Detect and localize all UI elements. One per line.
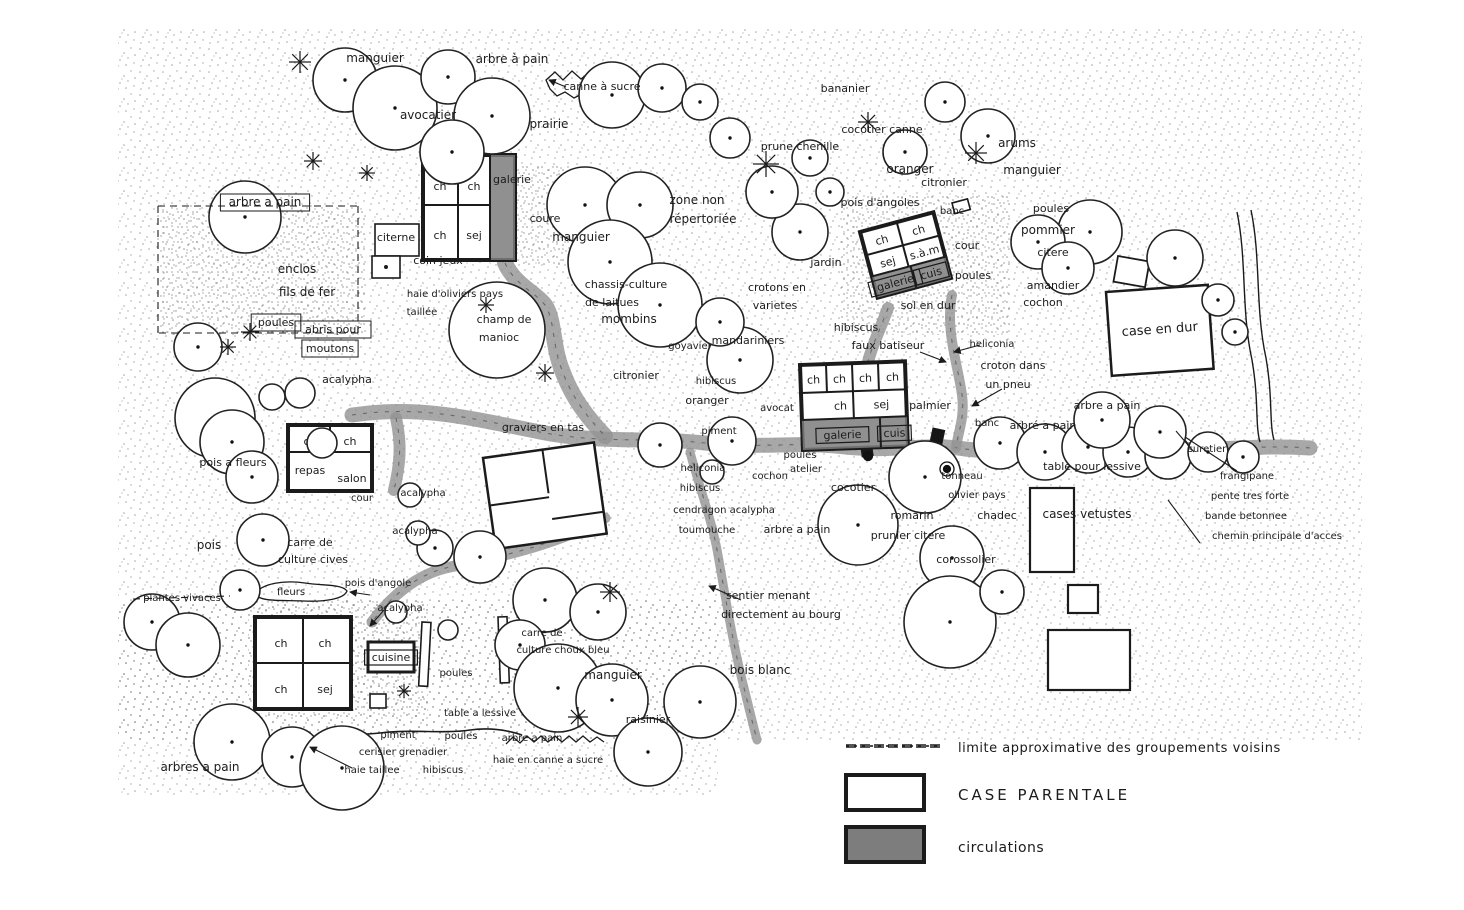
map-label: piment xyxy=(380,730,415,741)
tree-icon xyxy=(1147,230,1203,286)
tree-icon xyxy=(682,84,718,120)
map-label: haie en canne a sucre xyxy=(493,755,603,766)
map-label: fils de fer xyxy=(279,285,335,299)
map-label: pois a fleurs xyxy=(199,456,266,469)
room-label: cuisine xyxy=(372,651,411,664)
tree-icon xyxy=(285,378,315,408)
map-label: oranger xyxy=(685,394,729,407)
room-label: ch xyxy=(467,180,480,193)
map-label: abris pour xyxy=(305,323,361,336)
map-label: atelier xyxy=(790,464,823,475)
map-label: poules xyxy=(784,450,817,461)
legend-label: circulations xyxy=(958,840,1044,856)
room-label: ch xyxy=(343,435,356,448)
map-label: chadec xyxy=(977,509,1017,522)
small-structure xyxy=(370,694,386,708)
map-label: citronier xyxy=(921,176,967,189)
plant-star-icon xyxy=(536,364,554,382)
yard-object-icon xyxy=(864,452,873,461)
map-label: poules xyxy=(258,316,295,329)
small-structure xyxy=(372,256,400,278)
map-label: poules xyxy=(1033,202,1070,215)
room-label: sej xyxy=(317,683,333,696)
case-parentale-centre: chchchchchsejgaleriecuis xyxy=(800,361,912,450)
map-label: croton dans xyxy=(981,359,1046,372)
small-structure xyxy=(1113,256,1149,287)
cuisine-annexe: cuisine xyxy=(365,642,418,672)
map-label: galerie xyxy=(493,173,531,186)
map-label: citerne xyxy=(377,231,415,244)
tree-icon xyxy=(746,166,798,218)
tree-icon xyxy=(579,62,645,128)
tree-icon xyxy=(614,718,682,786)
case-parentale-sud: chchchsej xyxy=(255,617,351,709)
tree-icon xyxy=(1134,406,1186,458)
room-label: ch xyxy=(859,371,872,384)
map-label: hibiscus xyxy=(696,376,737,387)
map-label: manioc xyxy=(479,331,519,344)
map-label: table a lessive xyxy=(444,708,516,719)
map-label: oranger xyxy=(886,162,933,176)
plant-star-icon xyxy=(220,339,236,355)
map-label: toumouche xyxy=(679,525,736,536)
map-label: raisinier xyxy=(626,713,671,726)
map-label: prune chenille xyxy=(761,140,840,153)
legend-case-swatch xyxy=(846,775,924,810)
tree-icon xyxy=(220,570,260,610)
tree-icon xyxy=(638,64,686,112)
map-label: avocat xyxy=(760,403,794,414)
map-label: acalypha xyxy=(400,488,445,499)
map-label: prunier citere xyxy=(871,529,946,542)
map-label: fleurs xyxy=(277,587,305,598)
map-label: répertoriée xyxy=(669,212,736,226)
map-label: palmier xyxy=(909,399,951,412)
map-label: frangipane xyxy=(1220,471,1274,482)
map-label: poules xyxy=(445,731,478,742)
map-label: cochon xyxy=(1023,296,1063,309)
room-label: sej xyxy=(873,398,889,412)
map-label: arbré a pain xyxy=(1010,419,1077,432)
small-structure xyxy=(1068,585,1098,613)
map-label: suretier xyxy=(1188,444,1227,455)
map-label: tonneau xyxy=(941,471,982,482)
plant-star-icon xyxy=(397,684,411,698)
room-label: ch xyxy=(274,637,287,650)
map-label: cour xyxy=(351,493,374,504)
room-label: ch xyxy=(807,373,820,386)
small-structure xyxy=(1048,630,1130,690)
tree-icon xyxy=(209,181,281,253)
map-label: pois xyxy=(197,538,222,552)
legend-label: limite approximative des groupements voi… xyxy=(958,741,1281,756)
map-label: canne à sucre xyxy=(563,80,640,93)
case-en-dur: case en dur xyxy=(1106,285,1214,376)
tree-icon xyxy=(156,613,220,677)
map-label: arbre à pain xyxy=(476,52,549,66)
map-label: culture choux bleu xyxy=(516,645,609,656)
legend-circulations-swatch xyxy=(846,827,924,862)
map-label: crotons en xyxy=(748,281,806,294)
map-label: heliconia xyxy=(970,339,1015,350)
map-label: manguier xyxy=(1003,163,1061,177)
map-label: culture cives xyxy=(278,553,348,566)
map-label: cocotier canne xyxy=(841,123,922,136)
room-label: ch xyxy=(433,229,446,242)
tree-icon xyxy=(710,118,750,158)
map-label: manguier xyxy=(346,51,404,65)
map-label: pois d'angole xyxy=(345,578,412,589)
map-label: acalypha xyxy=(322,373,372,386)
tree-icon xyxy=(259,384,285,410)
plant-star-icon xyxy=(568,707,588,727)
map-label: poules xyxy=(955,269,992,282)
map-label: plantes vivaces xyxy=(143,593,221,604)
tree-icon xyxy=(438,620,458,640)
case-en-construction xyxy=(483,442,607,549)
map-label: pente tres forte xyxy=(1211,491,1289,502)
map-label: corossolier xyxy=(936,553,996,566)
map-label: sentier menant xyxy=(726,589,811,602)
map-label: hibiscus xyxy=(834,321,879,334)
map-label: chemin principale d'acces xyxy=(1212,531,1342,542)
map-label: arbre a pain xyxy=(764,523,831,536)
map-label: carre de xyxy=(287,536,333,549)
room-label: ch xyxy=(886,371,899,384)
map-label: chassis-culture xyxy=(585,278,668,291)
tree-icon xyxy=(420,120,484,184)
site-plan-map: chchchsejchchrepassalonchchchchchsejgale… xyxy=(0,0,1464,910)
map-label: citere xyxy=(1037,246,1068,259)
map-label: hibiscus xyxy=(680,483,721,494)
map-label: un pneu xyxy=(985,378,1030,391)
map-label: haie d'oliviers pays xyxy=(407,289,503,300)
room-label: sej xyxy=(466,229,482,242)
map-label: jardin xyxy=(809,256,841,269)
tree-icon xyxy=(708,417,756,465)
map-label: avocatier xyxy=(400,108,456,122)
room-label: ch xyxy=(274,683,287,696)
tree-icon xyxy=(307,428,337,458)
tree-icon xyxy=(664,666,736,738)
map-label: cases vetustes xyxy=(1042,507,1131,521)
site-plan-page: chchchsejchchrepassalonchchchchchsejgale… xyxy=(0,0,1464,910)
map-label: cendragon acalypha xyxy=(673,505,775,516)
legend-label: CASE PARENTALE xyxy=(958,786,1130,804)
map-label: prairie xyxy=(530,117,569,131)
map-label: acalypha xyxy=(377,603,422,614)
tree-icon xyxy=(1202,284,1234,316)
map-label: de laitues xyxy=(585,296,639,309)
plant-star-icon xyxy=(965,142,987,164)
map-label: manguier xyxy=(584,668,642,682)
map-label: arbre a pain xyxy=(229,195,302,209)
map-label: bande betonnee xyxy=(1205,511,1287,522)
map-label: acalypha xyxy=(392,526,437,537)
room-label: ch xyxy=(833,372,846,385)
legend: limite approximative des groupements voi… xyxy=(846,741,1281,862)
map-label: pommier xyxy=(1021,223,1075,237)
map-label: mandariniers xyxy=(712,334,785,347)
map-label: bois blanc xyxy=(730,663,791,677)
plant-star-icon xyxy=(241,323,259,341)
map-label: poules xyxy=(440,668,473,679)
tree-icon xyxy=(925,82,965,122)
room-label: galerie xyxy=(823,428,862,442)
room-label: ch xyxy=(834,399,847,412)
plant-star-icon xyxy=(304,152,322,170)
map-label: pois d'angoles xyxy=(841,196,920,209)
map-label: cour xyxy=(955,239,980,252)
map-label: taillée xyxy=(407,306,438,318)
map-label: sol en dur xyxy=(901,299,956,312)
map-label: graviers en tas xyxy=(502,421,585,434)
room-label: repas xyxy=(295,464,326,477)
tree-icon xyxy=(174,323,222,371)
map-label: arbre a pain xyxy=(1074,399,1141,412)
small-structure xyxy=(1030,488,1074,572)
map-label: carre de xyxy=(521,628,562,639)
map-label: varietes xyxy=(753,299,798,312)
map-label: coin jeux xyxy=(413,254,463,267)
map-label: coure xyxy=(530,212,561,225)
map-label: arbre a pain xyxy=(502,733,563,744)
map-label: champ de xyxy=(477,313,532,326)
tree-icon xyxy=(980,570,1024,614)
plant-star-icon xyxy=(600,582,620,602)
map-label: moutons xyxy=(306,342,354,355)
map-label: cocotier xyxy=(831,481,876,494)
tree-icon xyxy=(454,531,506,583)
map-label: citronier xyxy=(613,369,659,382)
map-label: manguier xyxy=(552,230,610,244)
plant-star-icon xyxy=(753,151,779,177)
tree-icon xyxy=(1222,319,1248,345)
map-label: olivier pays xyxy=(948,490,1005,501)
map-label: table pour lessive xyxy=(1043,460,1141,473)
map-label: romarin xyxy=(890,509,933,522)
map-label: heliconia xyxy=(681,463,726,474)
map-label: banc xyxy=(940,206,964,217)
map-label: directement au bourg xyxy=(721,608,841,621)
map-label: goyavier xyxy=(668,341,712,352)
map-label: haie taillee xyxy=(344,765,399,776)
map-label: enclos xyxy=(278,262,317,276)
plant-star-icon xyxy=(359,165,375,181)
map-label: banc xyxy=(975,418,999,429)
map-label: arbres a pain xyxy=(160,760,239,774)
map-label: mombins xyxy=(601,312,657,326)
map-label: bananier xyxy=(821,82,870,95)
path-circulation xyxy=(394,418,400,490)
map-label: cerisier grenadier xyxy=(359,747,448,758)
map-label: zone non xyxy=(670,193,725,207)
room-label: ch xyxy=(318,637,331,650)
map-label: amandier xyxy=(1027,279,1080,292)
map-label: faux batiseur xyxy=(852,339,925,352)
map-label: piment xyxy=(701,426,736,437)
tree-icon xyxy=(638,423,682,467)
room-label: salon xyxy=(337,472,366,485)
plant-star-icon xyxy=(289,51,311,73)
map-label: arums xyxy=(998,136,1036,150)
map-label: hibiscus xyxy=(423,765,464,776)
room-label: cuis xyxy=(883,426,906,440)
map-label: cochon xyxy=(752,471,788,482)
